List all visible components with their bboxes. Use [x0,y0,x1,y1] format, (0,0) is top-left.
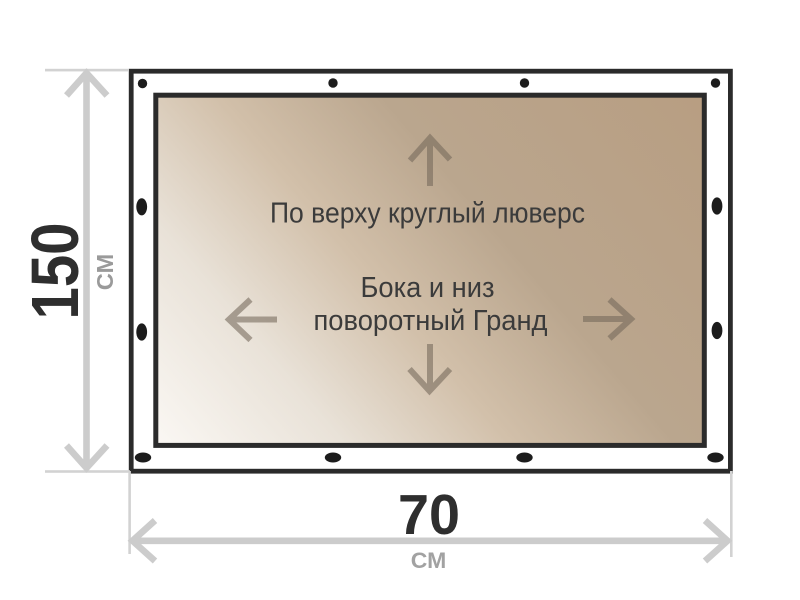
svg-text:70: 70 [398,483,460,547]
svg-text:СМ: СМ [92,254,118,291]
svg-text:Бока и низ: Бока и низ [361,272,495,304]
svg-text:СМ: СМ [411,548,447,573]
svg-text:150: 150 [18,223,93,320]
svg-text:По верху круглый люверс: По верху круглый люверс [270,198,585,230]
svg-text:поворотный Гранд: поворотный Гранд [314,305,548,337]
